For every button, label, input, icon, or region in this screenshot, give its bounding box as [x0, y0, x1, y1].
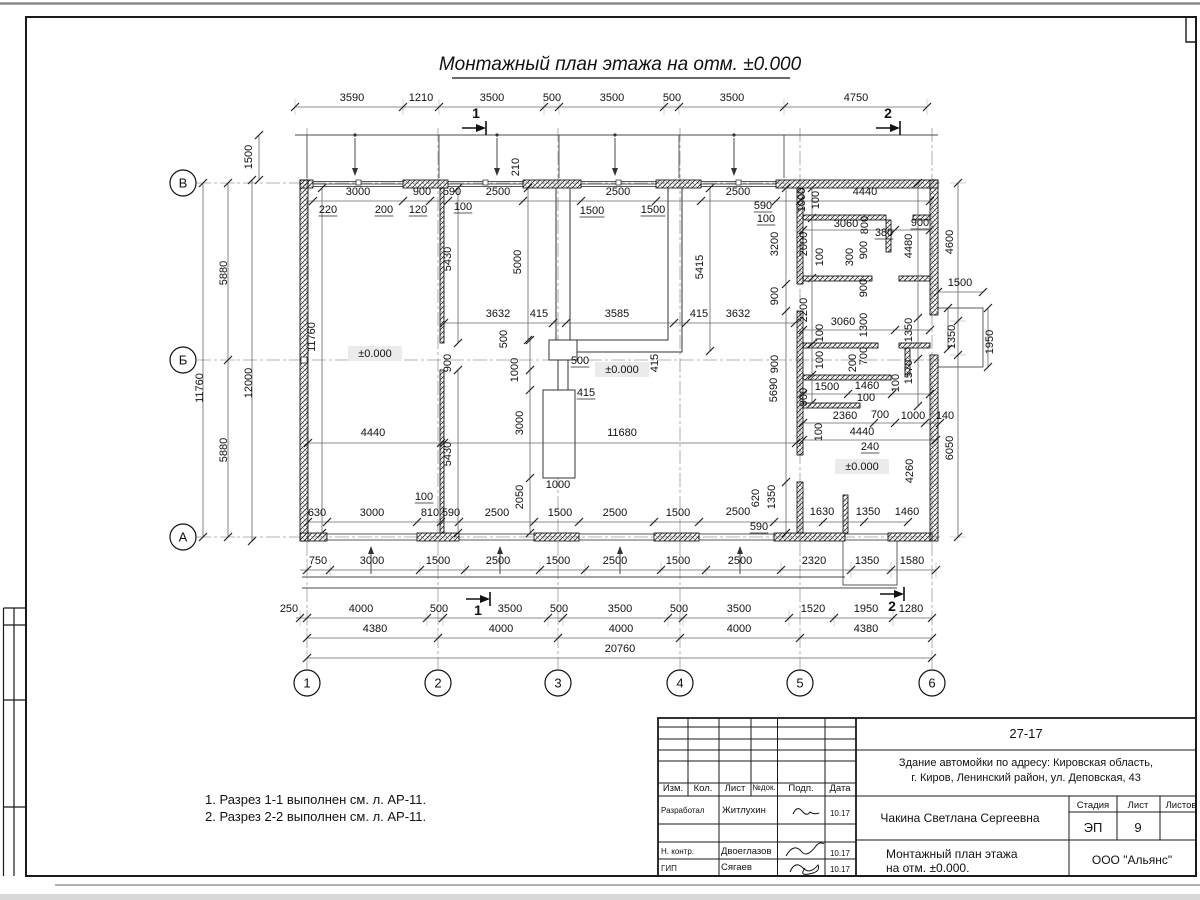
- dim-label: 1500: [948, 277, 972, 289]
- dim-label: 11760: [306, 322, 318, 352]
- canopy-node: [353, 133, 356, 136]
- dim-label: 100: [814, 248, 826, 266]
- dim-label: 5430: [442, 442, 454, 466]
- tb-name-2: Двоеглазов: [721, 846, 772, 857]
- dim-label: 1460: [855, 380, 879, 392]
- canopy-node: [732, 133, 735, 136]
- axis-marker-label: 4: [676, 676, 683, 691]
- dim-label: 100: [814, 351, 826, 369]
- tb-role-3: ГИП: [661, 864, 677, 873]
- canopy-lines: [295, 135, 938, 588]
- dim-label: 500: [571, 355, 589, 367]
- dim-label: 3500: [480, 92, 504, 104]
- dim-label: 1000: [796, 188, 808, 212]
- dim-label: 1500: [641, 204, 665, 216]
- tb-drawing-title-1: Монтажный план этажа: [886, 847, 1018, 861]
- section-arrow-icon: [890, 124, 900, 132]
- left-margin-boxes: [4, 608, 27, 876]
- dim-label: 1500: [243, 145, 255, 169]
- drawing-sheet: 3590121035005003500500350047503000900590…: [0, 0, 1200, 900]
- section-arrow-icon: [894, 590, 904, 598]
- tb-col-kol: Кол.: [694, 783, 713, 794]
- dim-label: 2500: [728, 555, 752, 567]
- tb-date-1: 10.17: [830, 809, 851, 818]
- dim-label: 3500: [608, 603, 632, 615]
- dim-label: 3632: [726, 308, 750, 320]
- section-mark-label: 2: [888, 598, 896, 614]
- dim-label: 750: [309, 555, 327, 567]
- dim-label: 1520: [801, 603, 825, 615]
- porch-outline: [938, 308, 983, 367]
- dim-label: 5690: [768, 378, 780, 402]
- tb-col-data: Дата: [829, 783, 851, 794]
- dim-label: 3500: [498, 603, 522, 615]
- axis-marker-label: 3: [554, 676, 561, 691]
- dim-label: 5430: [442, 247, 454, 271]
- dim-label: 1500: [666, 507, 690, 519]
- dim-label: 1500: [815, 381, 839, 393]
- dim-label: 11760: [194, 373, 206, 403]
- dim-label: 100: [415, 491, 433, 503]
- dim-label: 590: [443, 186, 461, 198]
- dim-label: 2500: [603, 507, 627, 519]
- dim-label: 1000: [509, 358, 521, 382]
- dim-label: 1460: [895, 506, 919, 518]
- tb-sheets-label: Листов: [1166, 800, 1197, 811]
- dim-label: 5880: [218, 438, 230, 462]
- tb-sheet-label: Лист: [1128, 800, 1149, 811]
- dim-label: 100: [813, 423, 825, 441]
- dim-label: 4000: [609, 623, 633, 635]
- tb-author: Чакина Светлана Сергеевна: [880, 811, 1039, 825]
- dim-label: 500: [498, 330, 510, 348]
- dim-label: 4000: [349, 603, 373, 615]
- title-block: Изм. Кол. Лист №док. Подп. Дата Разработ…: [658, 718, 1196, 876]
- dim-label: 1570: [903, 360, 915, 384]
- tb-sheet-value: 9: [1134, 820, 1141, 835]
- dim-label: 415: [690, 308, 708, 320]
- dim-label: 2500: [485, 507, 509, 519]
- openings-layer: [301, 180, 983, 585]
- dim-label: 1580: [900, 555, 924, 567]
- tb-project-line1: Здание автомойки по адресу: Кировская об…: [899, 757, 1153, 769]
- axis-marker-label: Б: [179, 353, 188, 368]
- dim-label: 2500: [726, 506, 750, 518]
- dim-label: 900: [911, 217, 929, 229]
- dim-label: 20760: [605, 643, 636, 655]
- dim-label: 1000: [901, 410, 925, 422]
- dim-label: 3000: [514, 411, 526, 435]
- dim-label: 1500: [580, 205, 604, 217]
- arrow-up-icon: [737, 546, 743, 554]
- tb-role-2: Н. контр.: [661, 847, 694, 856]
- dim-label: 3060: [831, 316, 855, 328]
- dim-label: 590: [442, 507, 460, 519]
- dim-label: 220: [319, 204, 337, 216]
- dim-label: 1280: [899, 603, 923, 615]
- dim-label: 1350: [855, 555, 879, 567]
- dim-label: 210: [510, 158, 522, 176]
- dim-label: 5000: [512, 250, 524, 274]
- axis-marker-label: 6: [928, 676, 935, 691]
- section-arrow-icon: [480, 595, 490, 603]
- arrow-down-icon: [731, 168, 737, 176]
- dim-label: 4600: [944, 230, 956, 254]
- dim-label: 590: [754, 200, 772, 212]
- level-mark: ±0.000: [605, 364, 639, 376]
- dim-label: 620: [750, 489, 762, 507]
- tb-col-list: Лист: [725, 783, 746, 794]
- dim-label: 1950: [854, 603, 878, 615]
- dim-label: 3500: [720, 92, 744, 104]
- dim-label: 3000: [360, 555, 384, 567]
- dim-label: 2000: [798, 232, 810, 256]
- dim-label: 2500: [486, 555, 510, 567]
- axis-marker-label: 2: [434, 676, 441, 691]
- arrow-up-icon: [497, 546, 503, 554]
- dim-label: 2500: [606, 186, 630, 198]
- dim-label: 810: [421, 507, 439, 519]
- dim-label: 630: [308, 507, 326, 519]
- canopy-node: [613, 133, 616, 136]
- dim-label: 1500: [548, 507, 572, 519]
- dim-label: 1210: [409, 92, 433, 104]
- dim-label: 1500: [666, 555, 690, 567]
- dim-label: 415: [577, 387, 595, 399]
- dim-label: 4750: [844, 92, 868, 104]
- tb-project-line2: г. Киров, Ленинский район, ул. Деповская…: [911, 772, 1141, 784]
- level-mark: ±0.000: [845, 461, 879, 473]
- dim-label: 1500: [426, 555, 450, 567]
- corner-box: [1186, 17, 1196, 42]
- sheet-bottom-strip: [0, 894, 1200, 900]
- dim-label: 3200: [769, 232, 781, 256]
- dim-label: 2050: [514, 485, 526, 509]
- dim-label: 140: [936, 410, 954, 422]
- section-mark-label: 2: [884, 105, 892, 121]
- dim-label: 3632: [486, 308, 510, 320]
- dim-label: 300: [844, 248, 856, 266]
- dim-label: 2360: [833, 410, 857, 422]
- dim-label: 1300: [858, 313, 870, 337]
- dim-label: 200: [375, 204, 393, 216]
- dim-label: 4480: [903, 234, 915, 258]
- tb-col-ndok: №док.: [752, 783, 775, 792]
- dim-label: 5880: [218, 261, 230, 285]
- tb-name-1: Житлухин: [722, 805, 766, 816]
- dim-label: 900: [442, 354, 454, 372]
- notes: 1. Разрез 1-1 выполнен см. л. АР-11. 2. …: [205, 792, 426, 824]
- dim-label: 11680: [607, 427, 637, 439]
- dim-label: 2500: [726, 186, 750, 198]
- dim-label: 1950: [984, 330, 996, 354]
- dim-label: 100: [890, 374, 902, 392]
- canopy-node: [495, 133, 498, 136]
- note-1: 1. Разрез 1-1 выполнен см. л. АР-11.: [205, 792, 426, 807]
- dim-label: 100: [810, 191, 822, 209]
- dim-label: 1350: [946, 325, 958, 349]
- dim-label: 4000: [727, 623, 751, 635]
- arrow-down-icon: [352, 168, 358, 176]
- dim-label: 2200: [798, 298, 810, 322]
- axis-marker-label: В: [179, 176, 188, 191]
- dim-label: 250: [280, 603, 298, 615]
- dim-label: 100: [857, 392, 875, 404]
- dim-label: 1350: [903, 318, 915, 342]
- dim-label: 900: [858, 279, 870, 297]
- floor-plan-canvas: 3590121035005003500500350047503000900590…: [0, 0, 1200, 900]
- dim-label: 100: [814, 324, 826, 342]
- tb-date-2: 10.17: [830, 849, 851, 858]
- dim-label: 4380: [363, 623, 387, 635]
- dim-label: 4440: [850, 426, 874, 438]
- dim-label: 900: [858, 241, 870, 259]
- arrow-up-icon: [368, 546, 374, 554]
- dim-label: 4440: [361, 427, 385, 439]
- dim-label: 2500: [603, 555, 627, 567]
- dim-label: 3500: [727, 603, 751, 615]
- note-2: 2. Разрез 2-2 выполнен см. л. АР-11.: [205, 809, 426, 824]
- tb-name-3: Сягаев: [721, 862, 752, 873]
- tb-doc-number: 27-17: [1009, 726, 1042, 741]
- dim-label: 1630: [810, 506, 834, 518]
- tb-stage-label: Стадия: [1077, 800, 1109, 811]
- dim-label: 3000: [346, 186, 370, 198]
- axis-marker-label: А: [179, 530, 188, 545]
- tb-col-podp: Подп.: [788, 783, 813, 794]
- dim-label: 700: [871, 409, 889, 421]
- tb-role-1: Разработал: [661, 806, 705, 815]
- arrow-down-icon: [612, 168, 618, 176]
- dim-label: 500: [670, 603, 688, 615]
- dim-label: 700: [858, 347, 870, 365]
- arrow-down-icon: [494, 168, 500, 176]
- dim-label: 1350: [856, 506, 880, 518]
- dim-label: 5415: [694, 255, 706, 279]
- dim-label: 1350: [766, 485, 778, 509]
- tb-company: ООО "Альянс": [1092, 853, 1172, 867]
- dim-label: 1000: [546, 479, 570, 491]
- dim-label: 900: [413, 186, 431, 198]
- dim-label: 4380: [854, 623, 878, 635]
- dim-label: 6050: [944, 436, 956, 460]
- dim-label: 800: [859, 216, 871, 234]
- dim-label: 100: [454, 201, 472, 213]
- dim-label: 3500: [600, 92, 624, 104]
- dim-label: 1500: [546, 555, 570, 567]
- tb-col-izm: Изм.: [663, 783, 683, 794]
- dim-label: 415: [530, 308, 548, 320]
- dim-label: 3060: [834, 218, 858, 230]
- dim-label: 900: [798, 388, 810, 406]
- signature-1: [793, 809, 819, 815]
- dim-label: 4440: [853, 186, 877, 198]
- dim-label: 900: [769, 355, 781, 373]
- dim-label: 2320: [802, 555, 826, 567]
- tb-date-3: 10.17: [830, 865, 851, 874]
- dim-label: 3590: [340, 92, 364, 104]
- dim-label: 380: [875, 227, 893, 239]
- dim-label: 3000: [360, 507, 384, 519]
- page-title: Монтажный план этажа на отм. ±0.000: [439, 54, 802, 75]
- dim-label: 100: [757, 213, 775, 225]
- level-marks: ±0.000±0.000±0.000: [348, 346, 889, 474]
- dim-label: 4000: [489, 623, 513, 635]
- dim-label: 120: [409, 204, 427, 216]
- section-arrow-icon: [476, 124, 486, 132]
- tb-drawing-title-2: на отм. ±0.000.: [886, 861, 969, 875]
- dim-label: 500: [550, 603, 568, 615]
- axis-marker-label: 5: [796, 676, 803, 691]
- signature-3: [790, 865, 819, 875]
- dim-label: 12000: [243, 368, 255, 399]
- arrow-up-icon: [617, 546, 623, 554]
- tb-stage-value: ЭП: [1084, 820, 1103, 835]
- dim-label: 240: [861, 441, 879, 453]
- dim-label: 590: [750, 521, 768, 533]
- section-mark-label: 1: [472, 105, 480, 121]
- dim-label: 500: [543, 92, 561, 104]
- dim-label: 415: [649, 354, 661, 372]
- dim-label: 500: [663, 92, 681, 104]
- dim-label: 3585: [605, 308, 629, 320]
- dim-label: 2500: [486, 186, 510, 198]
- dim-label: 4260: [904, 459, 916, 483]
- signature-2: [786, 843, 824, 856]
- dim-label: 500: [430, 603, 448, 615]
- axis-marker-label: 1: [303, 676, 310, 691]
- section-mark-label: 1: [474, 602, 482, 618]
- drawing-header: Монтажный план этажа на отм. ±0.000: [439, 54, 802, 78]
- level-mark: ±0.000: [358, 348, 392, 360]
- dim-label: 900: [769, 287, 781, 305]
